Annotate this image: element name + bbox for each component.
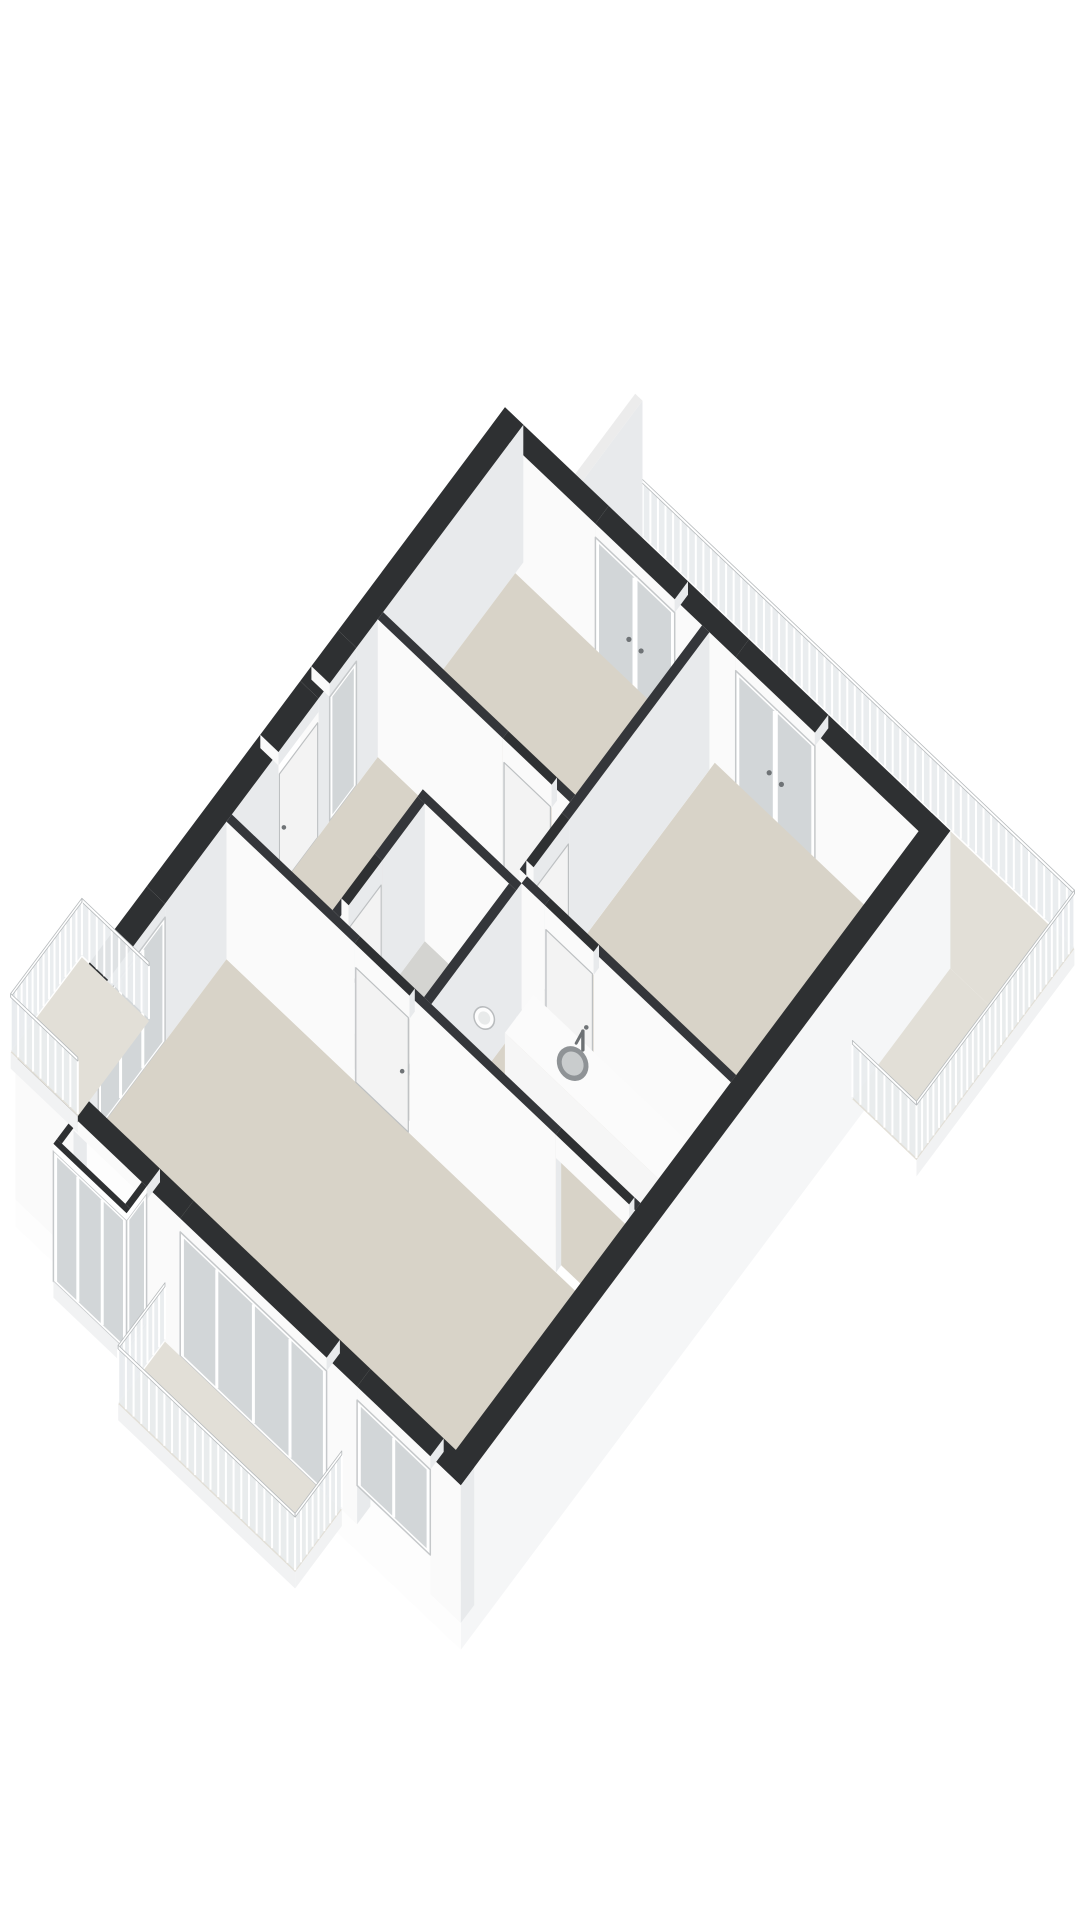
living-room-door-handle-icon (400, 1069, 405, 1074)
bedroom-2-balcony-doors-handle-icon (779, 782, 784, 787)
wall-nw-between-face-side (319, 684, 330, 837)
kitchen-door-handle-icon (584, 1025, 589, 1030)
bedroom-1-balcony-doors-handle-icon (639, 648, 644, 653)
bedroom-1-balcony-doors-handle-icon (626, 637, 631, 642)
wall-sw-right-face-side (461, 1467, 474, 1623)
wall-toilet-top-face-side (516, 883, 521, 1028)
entrance-door-handle-icon (282, 825, 287, 830)
wall-sw-right-face-front (430, 1456, 461, 1623)
floorplan-3d-render (0, 0, 1080, 1920)
floorplan-canvas (0, 0, 1080, 1920)
bedroom-2-balcony-doors-handle-icon (767, 770, 772, 775)
